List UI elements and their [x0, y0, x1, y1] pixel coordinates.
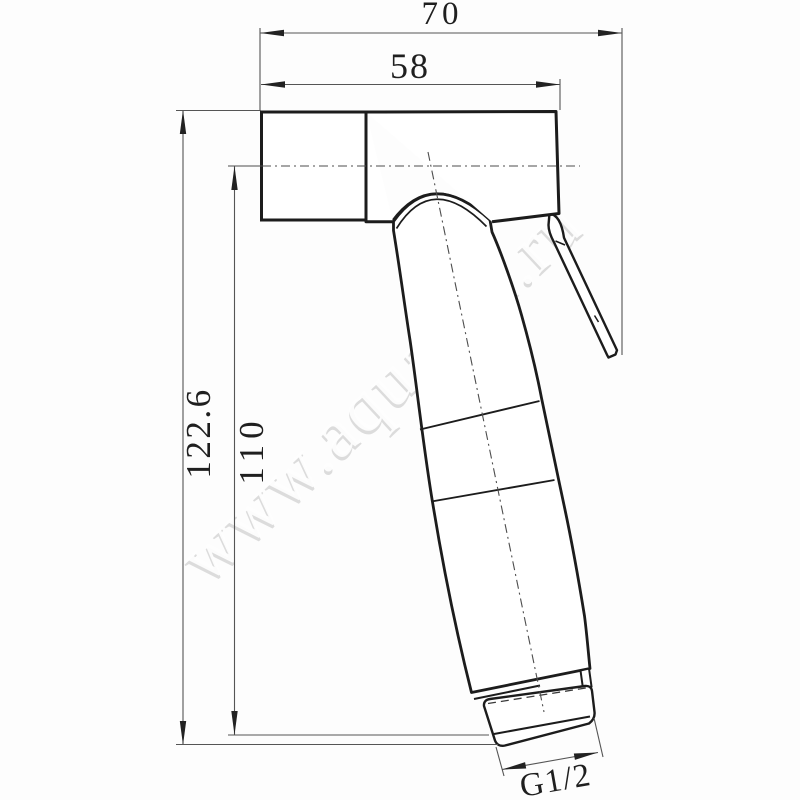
- svg-text:G1/2: G1/2: [517, 757, 594, 800]
- svg-text:110: 110: [232, 415, 271, 484]
- svg-text:58: 58: [390, 46, 430, 86]
- svg-text:122.6: 122.6: [179, 387, 218, 478]
- svg-text:70: 70: [422, 0, 463, 32]
